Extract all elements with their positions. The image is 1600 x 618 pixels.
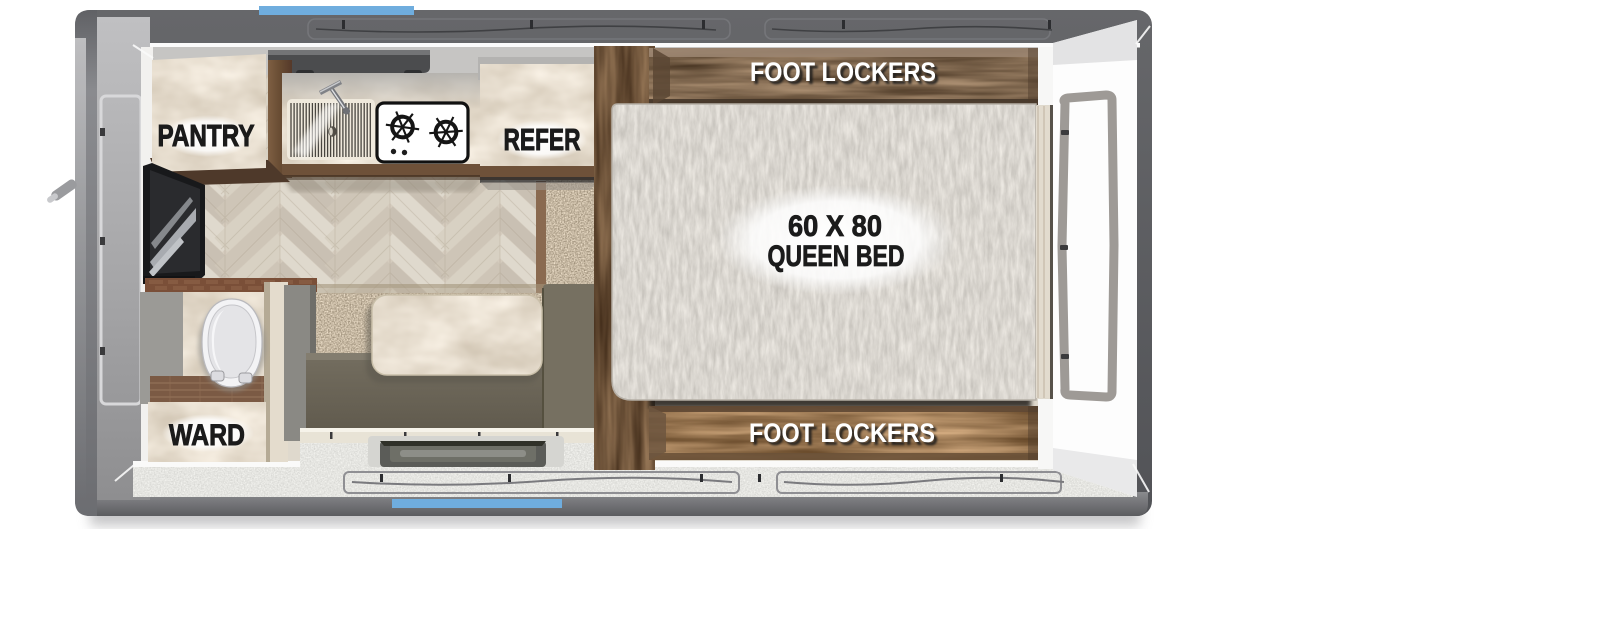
- svg-text:FOOT LOCKERS: FOOT LOCKERS: [750, 57, 936, 87]
- svg-text:QUEEN BED: QUEEN BED: [768, 240, 905, 273]
- svg-text:60 X 80: 60 X 80: [788, 210, 882, 243]
- svg-text:REFER: REFER: [504, 122, 581, 157]
- svg-text:FOOT LOCKERS: FOOT LOCKERS: [749, 418, 935, 448]
- svg-text:WARD: WARD: [169, 419, 245, 452]
- svg-text:PANTRY: PANTRY: [158, 118, 255, 153]
